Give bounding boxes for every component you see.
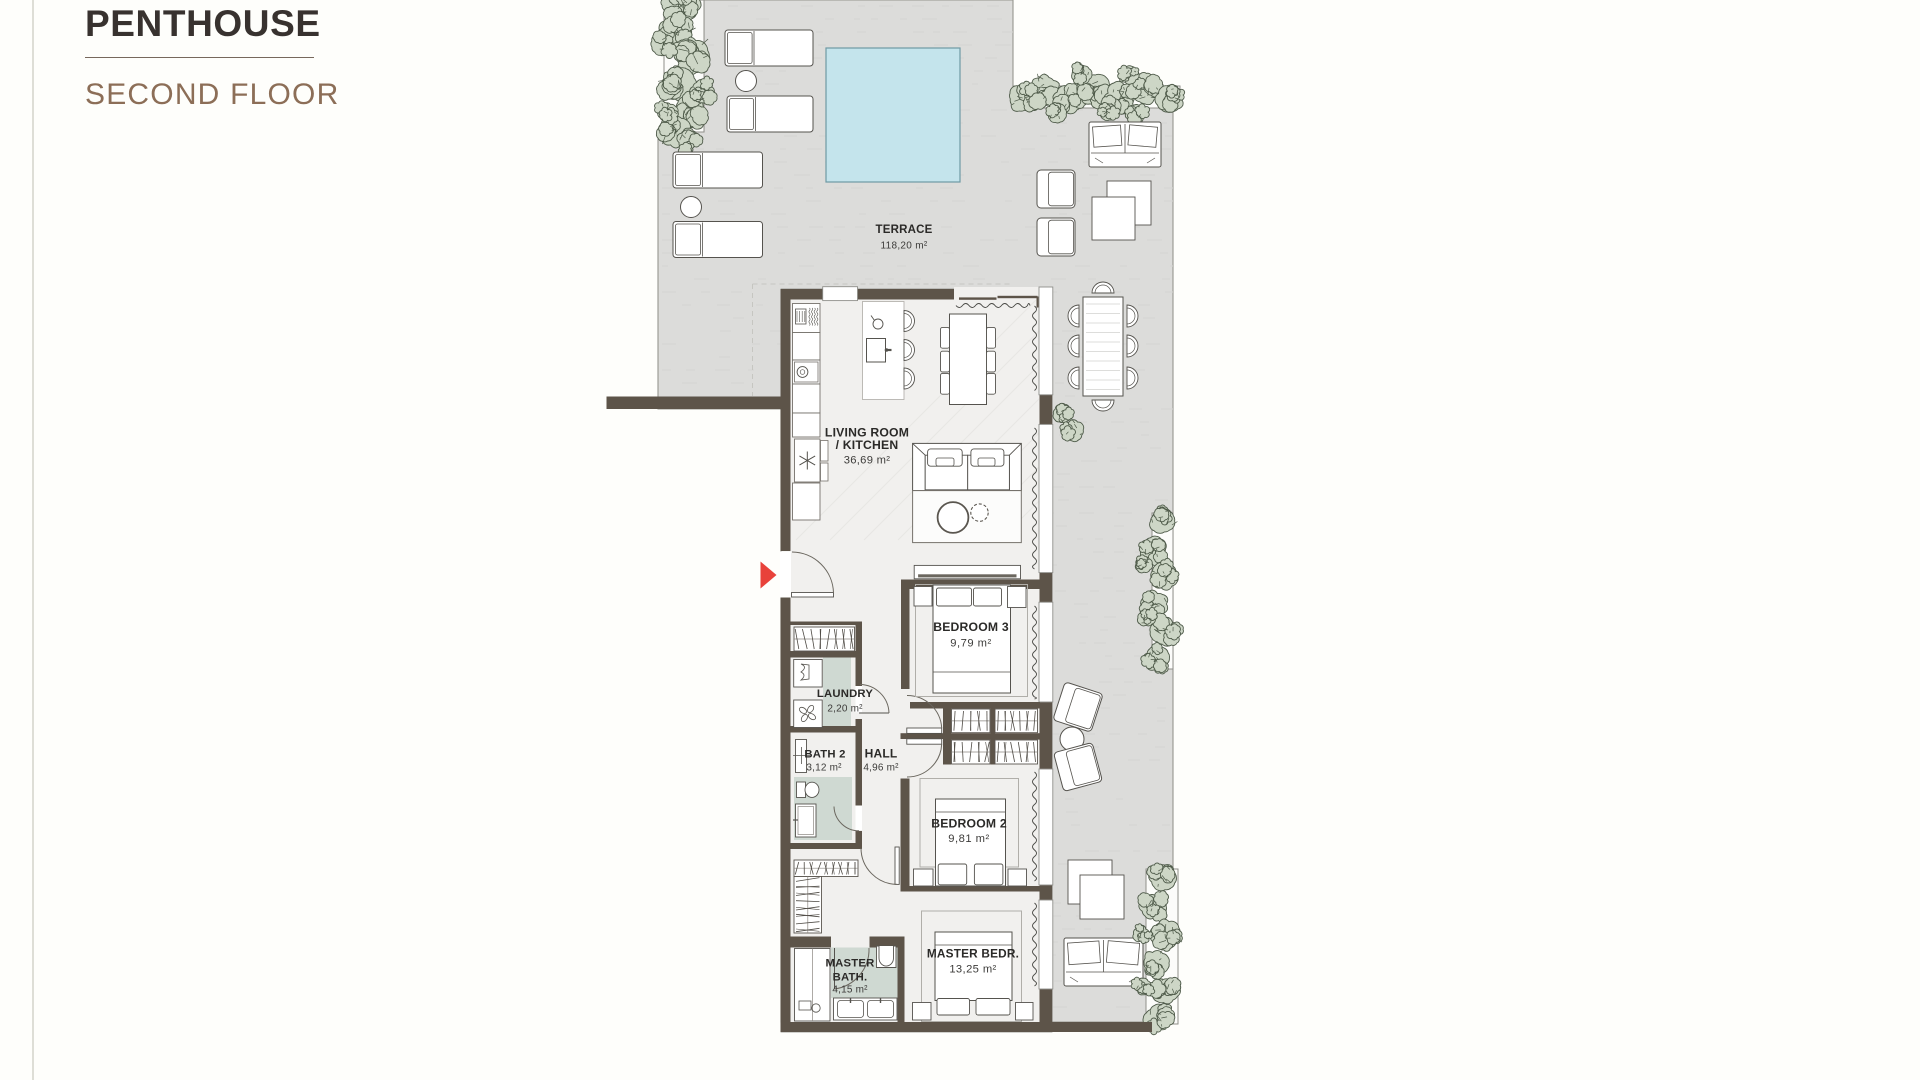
svg-text:BATH 2: BATH 2 (804, 749, 845, 761)
svg-text:TERRACE: TERRACE (876, 224, 933, 236)
svg-text:LAUNDRY: LAUNDRY (817, 688, 873, 700)
svg-text:BATH.: BATH. (833, 972, 868, 984)
svg-text:MASTER: MASTER (826, 958, 875, 970)
svg-text:BEDROOM 2: BEDROOM 2 (931, 817, 1007, 831)
svg-text:HALL: HALL (865, 747, 898, 761)
svg-text:36,69 m²: 36,69 m² (844, 455, 891, 467)
svg-text:BEDROOM 3: BEDROOM 3 (933, 620, 1009, 634)
svg-text:13,25 m²: 13,25 m² (949, 964, 996, 976)
svg-text:/ KITCHEN: / KITCHEN (836, 438, 899, 452)
svg-text:9,81 m²: 9,81 m² (948, 833, 989, 845)
svg-text:MASTER BEDR.: MASTER BEDR. (927, 947, 1019, 961)
svg-text:9,79 m²: 9,79 m² (950, 638, 991, 650)
svg-text:4,15 m²: 4,15 m² (832, 985, 868, 996)
svg-text:3,12 m²: 3,12 m² (806, 763, 842, 774)
svg-text:2,20 m²: 2,20 m² (827, 704, 863, 715)
svg-text:118,20 m²: 118,20 m² (881, 241, 928, 252)
svg-text:4,96 m²: 4,96 m² (863, 763, 899, 774)
